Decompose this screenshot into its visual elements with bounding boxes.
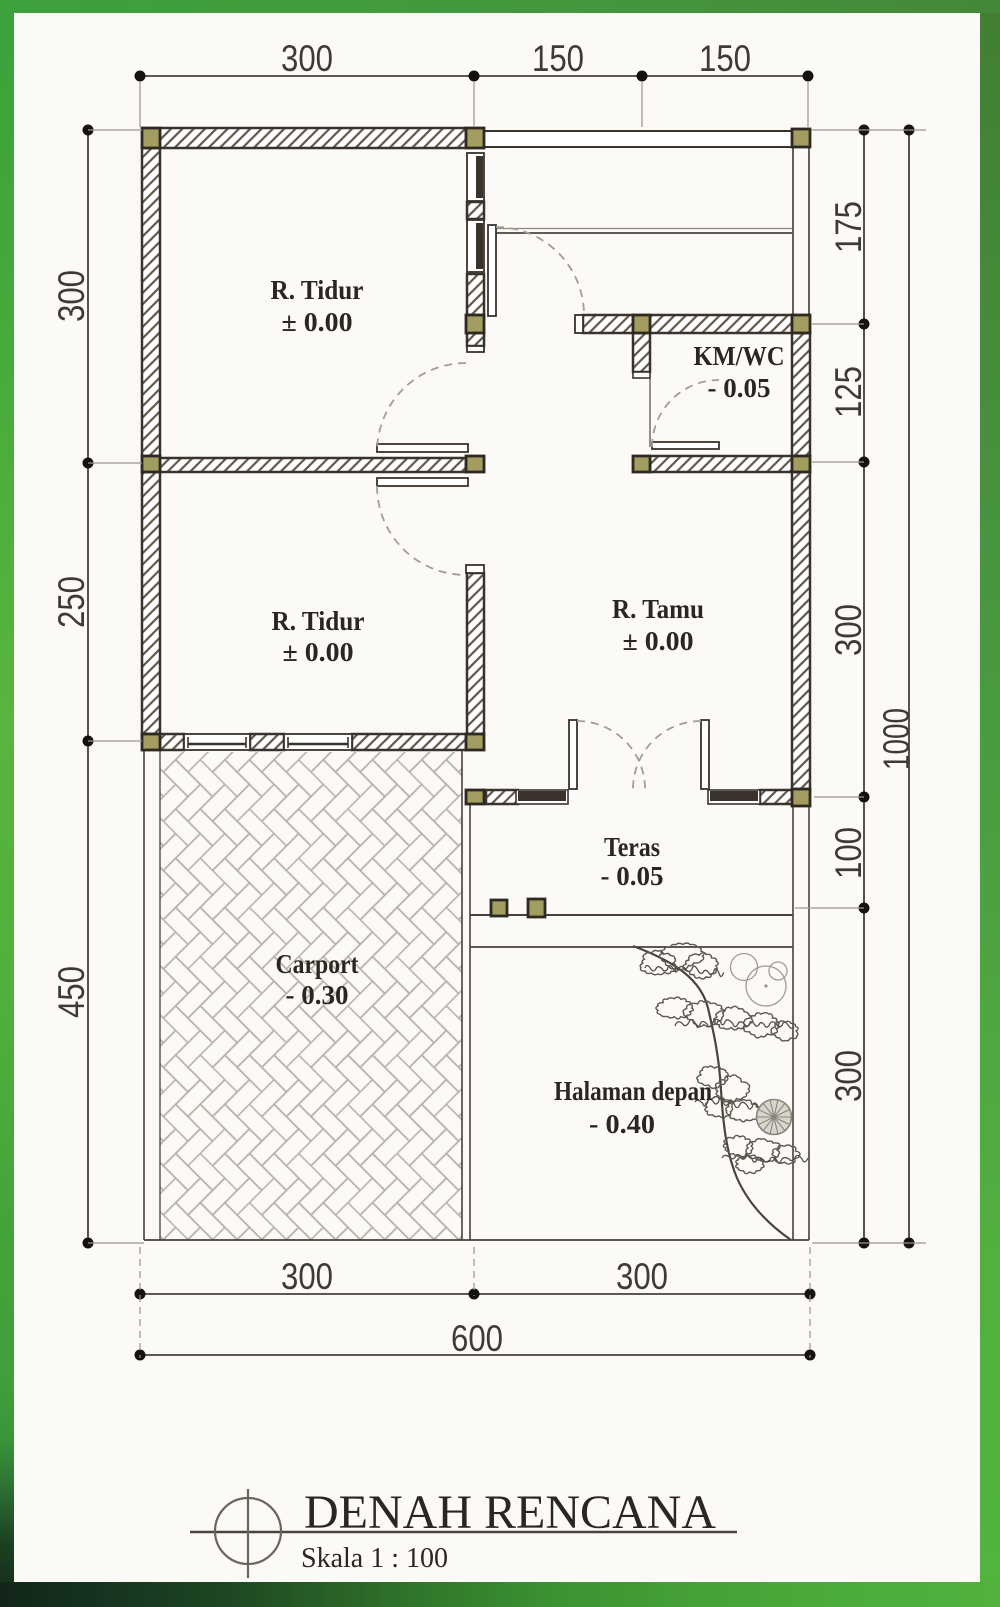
svg-text:Carport: Carport bbox=[276, 949, 359, 979]
svg-text:- 0.30: - 0.30 bbox=[286, 980, 349, 1010]
svg-text:300: 300 bbox=[616, 1256, 668, 1297]
svg-text:R. Tidur: R. Tidur bbox=[271, 275, 364, 305]
svg-text:Skala 1 : 100: Skala 1 : 100 bbox=[301, 1543, 448, 1574]
svg-text:250: 250 bbox=[51, 576, 92, 628]
svg-text:Teras: Teras bbox=[604, 832, 660, 862]
svg-text:450: 450 bbox=[51, 966, 92, 1018]
svg-text:175: 175 bbox=[828, 201, 869, 253]
svg-text:300: 300 bbox=[828, 1050, 869, 1102]
svg-text:300: 300 bbox=[828, 604, 869, 656]
svg-text:125: 125 bbox=[828, 366, 869, 418]
svg-text:± 0.00: ± 0.00 bbox=[623, 626, 694, 656]
svg-text:Halaman depan: Halaman depan bbox=[554, 1076, 712, 1106]
svg-text:150: 150 bbox=[699, 38, 751, 79]
svg-text:100: 100 bbox=[828, 827, 869, 879]
svg-text:± 0.00: ± 0.00 bbox=[282, 307, 353, 337]
svg-text:300: 300 bbox=[281, 38, 333, 79]
svg-text:- 0.05: - 0.05 bbox=[601, 861, 664, 891]
svg-text:- 0.05: - 0.05 bbox=[708, 373, 771, 403]
svg-text:R. Tamu: R. Tamu bbox=[612, 594, 704, 624]
svg-text:1000: 1000 bbox=[876, 708, 917, 770]
svg-text:R. Tidur: R. Tidur bbox=[272, 606, 365, 636]
svg-text:KM/WC: KM/WC bbox=[694, 341, 785, 371]
svg-text:150: 150 bbox=[532, 38, 584, 79]
svg-text:- 0.40: - 0.40 bbox=[589, 1109, 655, 1139]
svg-text:300: 300 bbox=[51, 270, 92, 322]
svg-text:± 0.00: ± 0.00 bbox=[283, 637, 354, 667]
svg-text:DENAH RENCANA: DENAH RENCANA bbox=[304, 1486, 716, 1539]
svg-text:300: 300 bbox=[281, 1256, 333, 1297]
svg-text:600: 600 bbox=[451, 1318, 503, 1359]
